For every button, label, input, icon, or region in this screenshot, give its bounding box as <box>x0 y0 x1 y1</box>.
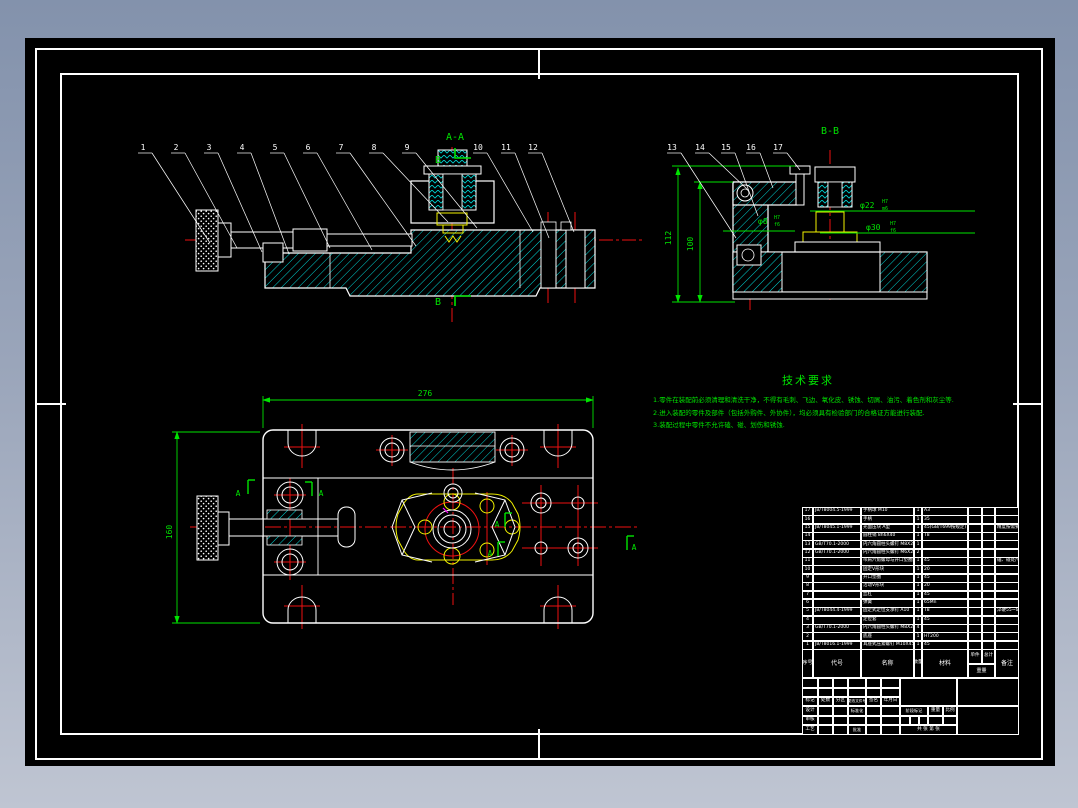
change-row-cell <box>848 688 866 697</box>
bolt-column <box>541 230 556 288</box>
tech-req-title: 技术要求 <box>653 372 963 388</box>
part-callout: 12 <box>528 143 538 152</box>
part-callout: 16 <box>746 143 756 152</box>
bom-header-cell: 名称 <box>861 649 914 678</box>
section-label-aa: A-A <box>446 132 464 143</box>
stage-cell <box>919 716 928 725</box>
scale-value-cell <box>943 716 957 725</box>
part-callout: 7 <box>339 143 344 152</box>
part-callout: 10 <box>473 143 483 152</box>
change-label-cell: 标记 <box>802 697 818 706</box>
svg-text:m6: m6 <box>882 206 888 212</box>
sig-cell <box>818 706 833 716</box>
bom-header-cell: 总计 <box>982 649 995 664</box>
part-callout: 3 <box>207 143 212 152</box>
side-section-view: 112 100 φ8 H7 f6 φ22 H7 m6 φ30 H7 f6 B-B… <box>664 126 975 310</box>
stage-label-cell: 阶段标记 <box>900 706 928 716</box>
change-label-cell: 处数 <box>818 697 833 706</box>
svg-text:H7: H7 <box>774 215 780 221</box>
section-a-label: A <box>319 489 324 498</box>
change-row-cell <box>818 688 833 697</box>
part-callout: 1 <box>141 143 146 152</box>
change-row-cell <box>866 688 881 697</box>
callout-leader <box>350 153 416 246</box>
role-cell: 审核 <box>802 716 818 725</box>
date-cell <box>833 706 848 716</box>
top-plan-view: 276 160 AAAAA <box>165 389 640 629</box>
sig-cell <box>866 706 881 716</box>
front-section-view: A-A B B 123456789101112 <box>138 132 645 324</box>
section-a-label: A <box>488 549 493 558</box>
change-label-cell: 分区 <box>833 697 848 706</box>
part-callout: 11 <box>501 143 511 152</box>
callout-leader <box>542 153 574 232</box>
part-callout: 5 <box>273 143 278 152</box>
dim-160: 160 <box>165 525 174 540</box>
sheet-count-cell: 共 张 第 张 <box>900 725 957 735</box>
change-label-cell: 签名 <box>866 697 881 706</box>
date-cell <box>881 725 900 735</box>
bom-header-cell: 代号 <box>813 649 861 678</box>
title-block: 标记处数分区更改文件号签名年月日设计标准化审核工艺批准阶段标记重量比例共 张 第… <box>802 678 1019 735</box>
role-cell: 工艺 <box>802 725 818 735</box>
dim-100: 100 <box>686 237 695 252</box>
date-cell <box>833 716 848 725</box>
cut-mark-b-bottom: B <box>435 297 441 308</box>
bom-header-cell: 重量 <box>968 664 995 678</box>
weight-label-cell: 重量 <box>928 706 943 716</box>
change-row-cell <box>833 678 848 688</box>
change-row-cell <box>881 678 900 688</box>
svg-text:H7: H7 <box>890 221 896 227</box>
dim-276: 276 <box>418 389 433 398</box>
change-row-cell <box>866 678 881 688</box>
callout-leader <box>709 153 748 190</box>
sig-cell <box>818 716 833 725</box>
role-cell: 标准化 <box>848 706 866 716</box>
role-cell: 设计 <box>802 706 818 716</box>
knurled-knob <box>196 210 218 271</box>
bom-header-cell: 数量 <box>914 649 922 678</box>
callout-leader <box>152 153 210 243</box>
section-a-label: A <box>236 489 241 498</box>
change-row-cell <box>802 688 818 697</box>
change-row-cell <box>818 678 833 688</box>
scale-label-cell: 比例 <box>943 706 957 716</box>
role-cell: 批准 <box>848 725 866 735</box>
section-a-label: A <box>632 543 637 552</box>
part-callout: 2 <box>174 143 179 152</box>
part-callout: 6 <box>306 143 311 152</box>
sig-cell <box>866 716 881 725</box>
drawing-title-cell <box>957 706 1019 735</box>
knurled-knob-top <box>197 496 218 560</box>
drawing-number-cell <box>957 678 1019 706</box>
section-label-bb: B-B <box>821 126 839 137</box>
weight-value-cell <box>928 716 943 725</box>
part-callout: 14 <box>695 143 705 152</box>
bom-header-cell: 备注 <box>995 649 1019 678</box>
cad-viewer-canvas: { "colors":{"background_top":"#8392ac","… <box>0 0 1078 808</box>
change-row-cell <box>848 678 866 688</box>
bom-header-cell: 材料 <box>922 649 968 678</box>
change-row-cell <box>833 688 848 697</box>
svg-text:H7: H7 <box>882 199 888 205</box>
change-row-cell <box>881 688 900 697</box>
svg-text:f6: f6 <box>890 228 896 234</box>
dim-112: 112 <box>664 231 673 246</box>
change-row-cell <box>802 678 818 688</box>
date-cell <box>881 706 900 716</box>
sig-cell <box>866 725 881 735</box>
bolt-column <box>566 230 585 288</box>
change-label-cell: 年月日 <box>881 697 900 706</box>
part-callout: 13 <box>667 143 677 152</box>
part-callout: 15 <box>721 143 731 152</box>
tech-req-line: 2.进入装配的零件及部件（包括外购件、外协件），均必须具有检验部门的合格证方能进… <box>653 407 963 420</box>
bom-header-cell: 单件 <box>968 649 982 664</box>
callout-leader <box>515 153 549 238</box>
workpiece-pump <box>392 484 520 564</box>
change-label-cell: 更改文件号 <box>848 697 866 706</box>
date-cell <box>833 725 848 735</box>
part-callout: 8 <box>372 143 377 152</box>
part-callout: 17 <box>773 143 783 152</box>
dim-dia8: φ8 <box>758 217 768 226</box>
bom-header-cell: 序号 <box>802 649 813 678</box>
part-callout: 9 <box>405 143 410 152</box>
svg-text:f6: f6 <box>774 222 780 228</box>
dim-dia30: φ30 <box>866 223 881 232</box>
sig-cell <box>818 725 833 735</box>
tech-req-line: 3.装配过程中零件不允许磕、碰、划伤和锈蚀. <box>653 419 963 432</box>
parts-list: 17JB/T8004.5-1999手柄球 M101A316手柄13515JB/T… <box>802 507 1019 678</box>
section-a-label: A <box>495 520 500 529</box>
cut-mark-b-top: B <box>435 155 441 166</box>
date-cell <box>881 716 900 725</box>
stage-cell <box>910 716 919 725</box>
blank-cell <box>900 678 957 706</box>
sig-cell <box>848 716 866 725</box>
technical-requirements: 技术要求 1.零件在装配前必须清理和清洗干净，不得有毛刺、飞边、氧化皮、锈蚀、切… <box>653 372 963 432</box>
dim-dia22: φ22 <box>860 201 875 210</box>
stage-cell <box>900 716 910 725</box>
part-callout: 4 <box>240 143 245 152</box>
tech-req-line: 1.零件在装配前必须清理和清洗干净，不得有毛刺、飞边、氧化皮、锈蚀、切屑、油污、… <box>653 394 963 407</box>
